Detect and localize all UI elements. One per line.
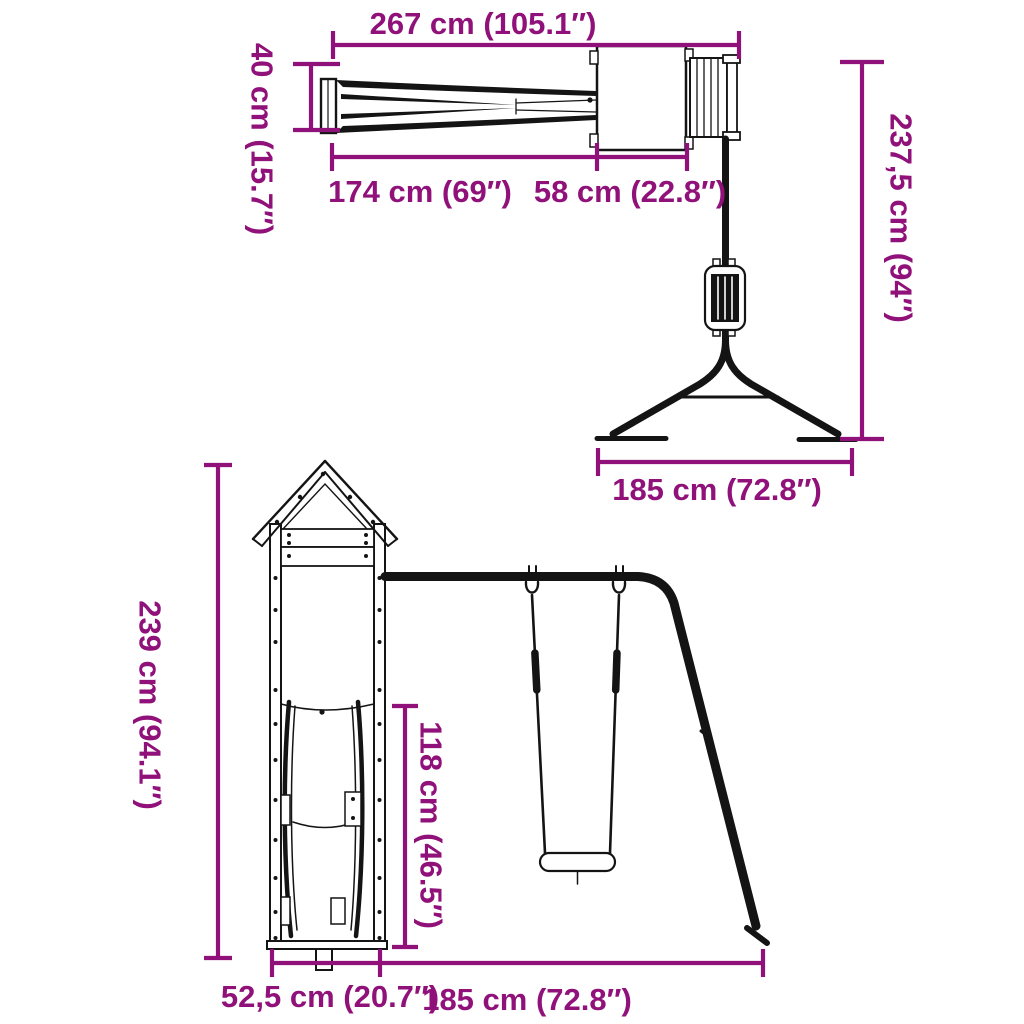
diagram-canvas xyxy=(0,0,1024,1024)
dim-swing-span-label: 185 cm (72.8″) xyxy=(422,984,632,1015)
dim-frame-depth-label: 185 cm (72.8″) xyxy=(612,474,822,505)
dim-swing-height-label: 118 cm (46.5″) xyxy=(416,721,447,929)
product-dimension-diagram: 267 cm (105.1″) 40 cm (15.7″) 174 cm (69… xyxy=(0,0,1024,1024)
dim-slide-width-label: 40 cm (15.7″) xyxy=(247,43,278,235)
front-view-drawing xyxy=(253,461,767,970)
dim-tower-height-label: 239 cm (94.1″) xyxy=(135,600,166,810)
post-screws xyxy=(274,576,382,940)
dim-slide-length-label: 174 cm (69″) xyxy=(328,176,512,207)
dim-frame-height-label: 237,5 cm (94″) xyxy=(886,113,917,323)
dim-total-length-label: 267 cm (105.1″) xyxy=(370,8,597,39)
top-view-slide-drawing xyxy=(321,46,740,150)
dim-tower-width-label: 52,5 cm (20.7″) xyxy=(221,981,439,1012)
dim-platform-depth-label: 58 cm (22.8″) xyxy=(534,176,726,207)
